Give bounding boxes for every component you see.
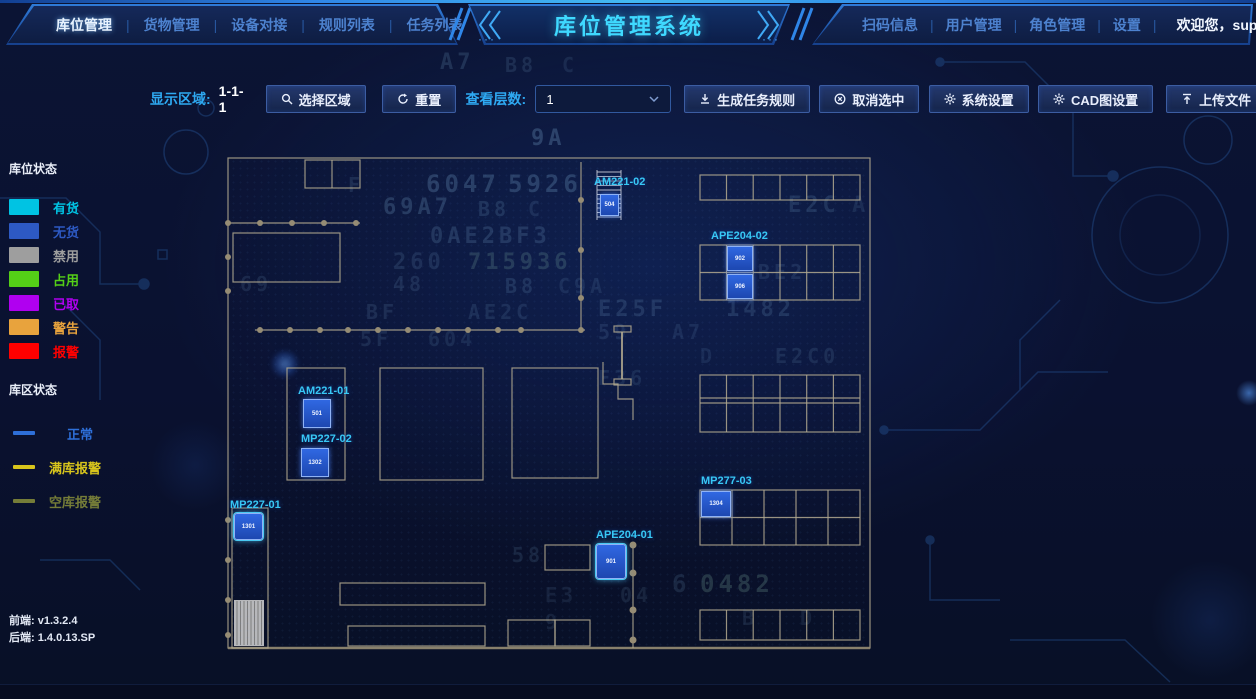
zone-label-MP227-02: MP227-02 [301,433,352,445]
color-swatch [9,343,39,359]
layer-label: 查看层数: [466,89,527,109]
nav-separator: | [126,17,130,33]
legend-item-warning: 警告 [9,315,101,339]
color-swatch [9,199,39,215]
hex-char: B8 [505,53,537,77]
select-area-label: 选择区域 [299,90,351,109]
system-settings-button[interactable]: 系统设置 [929,85,1029,113]
nav-device-docking[interactable]: 设备对接 [231,15,287,35]
nav-separator: | [930,17,934,33]
line-swatch [13,431,35,435]
legend-label: 满库报警 [49,458,101,477]
color-swatch [9,271,39,287]
backend-version: 后端: 1.4.0.13.SP [9,630,95,647]
legend-label: 正常 [67,424,93,443]
nav-role-management[interactable]: 角色管理 [1029,15,1085,35]
dots-decoration: ··· [478,32,496,46]
cell-APE204-02-bottom[interactable]: 906 [727,274,753,299]
legend-label: 无货 [53,222,79,241]
gear-icon [1053,93,1065,105]
upload-icon [1181,93,1193,105]
legend-label: 报警 [53,342,79,361]
legend-item-normal: 正常 [9,416,101,450]
legend-item-empty-alarm: 空库报警 [9,484,101,518]
zone-label-MP277-03: MP277-03 [701,475,752,487]
dots-decoration: ··· [762,32,780,46]
legend-item-taken: 已取 [9,291,101,315]
header-left-panel: 库位管理 | 货物管理 | 设备对接 | 规则列表 | 任务列表 [6,4,458,45]
legend-label: 警告 [53,318,79,337]
zone-status-title: 库区状态 [9,381,101,398]
system-settings-label: 系统设置 [962,90,1014,109]
legend-item-no-goods: 无货 [9,219,101,243]
cell-AM221-02[interactable]: 504 [600,194,619,216]
layer-select-value: 1 [546,92,553,107]
display-area-value: 1-1-1 [219,83,249,115]
header: 库位管理 | 货物管理 | 设备对接 | 规则列表 | 任务列表 库位管理系统 … [0,0,1256,50]
nav-separator: | [1097,17,1101,33]
legend-item-alarm: 报警 [9,339,101,363]
header-right-panel: 扫码信息 | 用户管理 | 角色管理 | 设置 | 欢迎您，super [812,4,1253,45]
line-swatch [13,465,35,469]
upload-file-label: 上传文件 [1199,90,1251,109]
upload-file-button[interactable]: 上传文件 [1166,85,1256,113]
cancel-selection-button[interactable]: 取消选中 [819,85,919,113]
zone-label-AM221-02: AM221-02 [594,176,645,188]
line-swatch [13,499,35,503]
reset-label: 重置 [415,90,441,109]
refresh-icon [397,93,409,105]
color-swatch [9,247,39,263]
color-swatch [9,295,39,311]
color-swatch [9,319,39,335]
display-area-label: 显示区域: [150,89,211,109]
nav-scan-info[interactable]: 扫码信息 [862,15,918,35]
legend-sidebar: 库位状态 有货 无货 禁用 占用 已取 警告 报警 库区状态 正常 满库报警 空… [9,160,101,518]
legend-item-has-goods: 有货 [9,195,101,219]
zone-label-MP227-01: MP227-01 [230,499,281,511]
hex-char: 9A [531,126,566,151]
cad-settings-label: CAD图设置 [1071,90,1138,109]
nav-separator: | [1153,17,1157,33]
legend-item-full-alarm: 满库报警 [9,450,101,484]
cell-MP227-01[interactable]: 1301 [234,513,263,540]
zone-label-APE204-01: APE204-01 [596,529,653,541]
welcome-user-text: 欢迎您，super [1177,15,1256,35]
nav-separator: | [1014,17,1018,33]
hex-char: A7 [440,50,475,75]
page-title: 库位管理系统 [470,6,788,43]
chevron-down-icon [648,93,660,105]
nav-goods-management[interactable]: 货物管理 [144,15,200,35]
cell-MP277-03[interactable]: 1304 [701,491,731,517]
nav-separator: | [214,17,218,33]
nav-storage-management[interactable]: 库位管理 [56,15,112,35]
hex-char: C [562,53,578,77]
reset-button[interactable]: 重置 [382,85,456,113]
cad-settings-button[interactable]: CAD图设置 [1038,85,1153,113]
warehouse-map[interactable]: AM221-02 504 APE204-02 902 906 AM221-01 … [224,152,874,652]
cancel-icon [834,93,846,105]
nav-user-management[interactable]: 用户管理 [946,15,1002,35]
glow-dot [1150,560,1256,680]
cancel-selection-label: 取消选中 [852,90,904,109]
color-swatch [9,223,39,239]
header-title-panel: 库位管理系统 [468,4,790,45]
legend-label: 占用 [53,270,79,289]
toolbar: 显示区域: 1-1-1 选择区域 重置 查看层数: 1 生成任务规则 取消选中 … [150,85,1256,113]
cell-AM221-01[interactable]: 501 [303,399,331,428]
legend-item-disabled: 禁用 [9,243,101,267]
cell-APE204-01[interactable]: 901 [596,544,626,579]
zone-label-AM221-01: AM221-01 [298,385,349,397]
glow-dot [1236,380,1256,406]
version-info: 前端: v1.3.2.4 后端: 1.4.0.13.SP [9,613,95,647]
generate-task-rule-button[interactable]: 生成任务规则 [684,85,810,113]
legend-label: 空库报警 [49,492,101,511]
cell-APE204-02-top[interactable]: 902 [727,246,753,271]
location-status-title: 库位状态 [9,160,101,177]
select-area-button[interactable]: 选择区域 [266,85,366,113]
legend-label: 禁用 [53,246,79,265]
legend-label: 有货 [53,198,79,217]
legend-item-occupied: 占用 [9,267,101,291]
nav-separator: | [301,17,305,33]
bottom-band [0,684,1256,699]
layer-select[interactable]: 1 [535,85,671,113]
nav-rule-list[interactable]: 规则列表 [319,15,375,35]
legend-label: 已取 [53,294,79,313]
gear-icon [944,93,956,105]
frontend-version: 前端: v1.3.2.4 [9,613,95,630]
nav-settings[interactable]: 设置 [1113,15,1141,35]
search-icon [281,93,293,105]
header-top-line [0,0,1256,3]
generate-task-rule-label: 生成任务规则 [717,90,795,109]
zone-label-APE204-02: APE204-02 [711,230,768,242]
nav-separator: | [389,17,393,33]
cell-MP227-02[interactable]: 1302 [301,448,329,477]
download-icon [699,93,711,105]
